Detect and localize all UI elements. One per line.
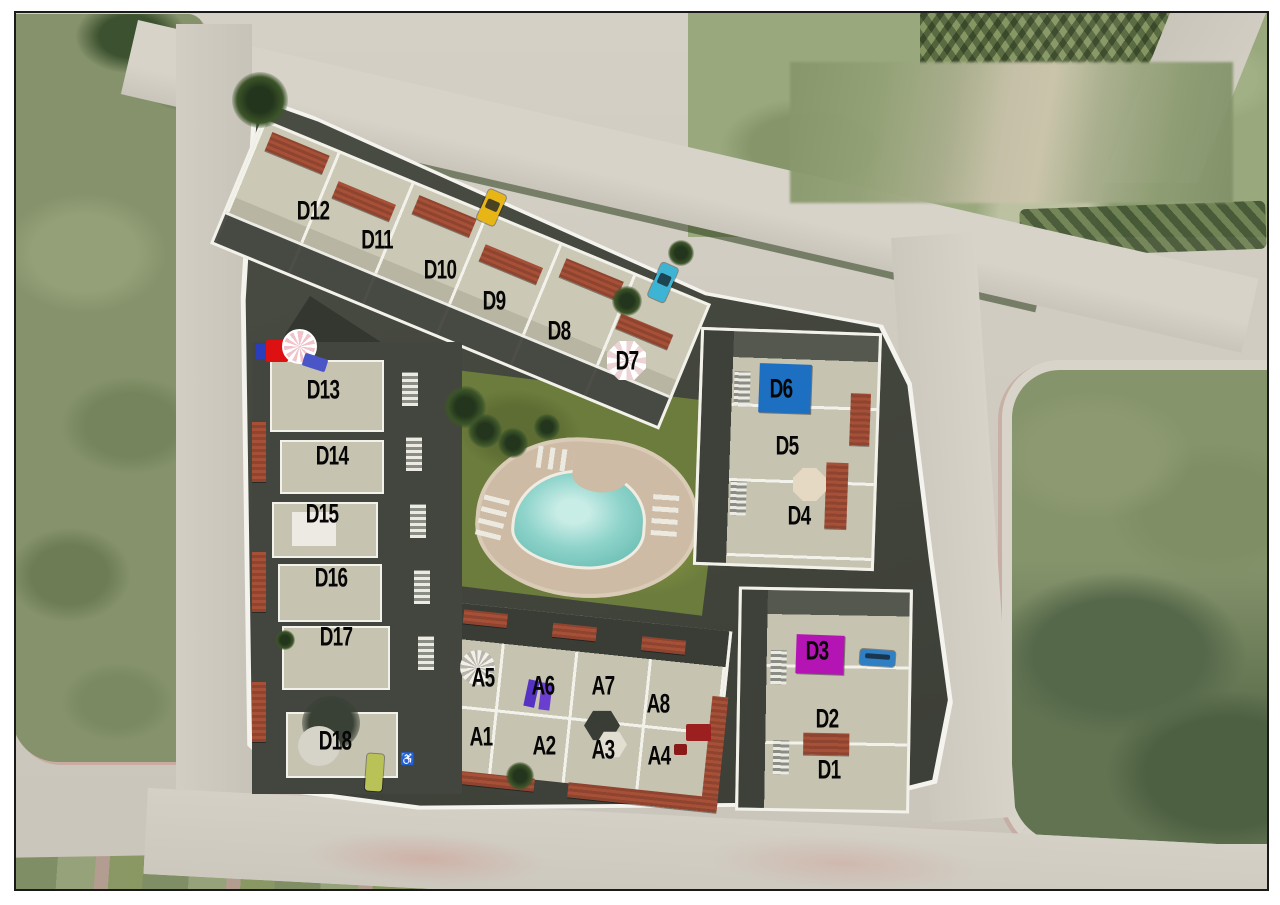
unit-label-d11: D11: [361, 225, 393, 256]
unit-label-a5: A5: [472, 663, 495, 694]
unit-label-a8: A8: [647, 689, 670, 720]
unit-labels-layer: D1D2D3D4D5D6D7D8D9D10D11D12D13D14D15D16D…: [14, 11, 1269, 891]
unit-label-a3: A3: [592, 735, 615, 766]
unit-label-d9: D9: [483, 286, 506, 317]
unit-label-d7: D7: [616, 346, 639, 377]
unit-label-d14: D14: [316, 441, 349, 472]
unit-label-d16: D16: [315, 563, 348, 594]
unit-label-d5: D5: [776, 431, 799, 462]
unit-label-a4: A4: [648, 741, 671, 772]
unit-label-a6: A6: [532, 671, 555, 702]
unit-label-a2: A2: [533, 731, 556, 762]
unit-label-d10: D10: [424, 255, 457, 286]
unit-label-d15: D15: [306, 499, 339, 530]
unit-label-d13: D13: [307, 375, 340, 406]
unit-label-a1: A1: [470, 722, 493, 753]
aerial-photo: ♿ D1D2D3D4D5D6D7D8D9D10D11D12D13D14D15D1…: [14, 11, 1269, 891]
unit-label-d17: D17: [320, 622, 353, 653]
unit-label-a7: A7: [592, 671, 615, 702]
unit-label-d4: D4: [788, 501, 811, 532]
unit-label-d8: D8: [548, 316, 571, 347]
unit-label-d2: D2: [816, 704, 839, 735]
unit-label-d12: D12: [297, 196, 330, 227]
unit-label-d1: D1: [818, 755, 841, 786]
unit-label-d6: D6: [770, 374, 793, 405]
site-plan-stage: ♿ D1D2D3D4D5D6D7D8D9D10D11D12D13D14D15D1…: [0, 0, 1280, 905]
aerial-photo-frame: ♿ D1D2D3D4D5D6D7D8D9D10D11D12D13D14D15D1…: [14, 11, 1269, 891]
unit-label-d18: D18: [319, 726, 352, 757]
unit-label-d3: D3: [806, 636, 829, 667]
